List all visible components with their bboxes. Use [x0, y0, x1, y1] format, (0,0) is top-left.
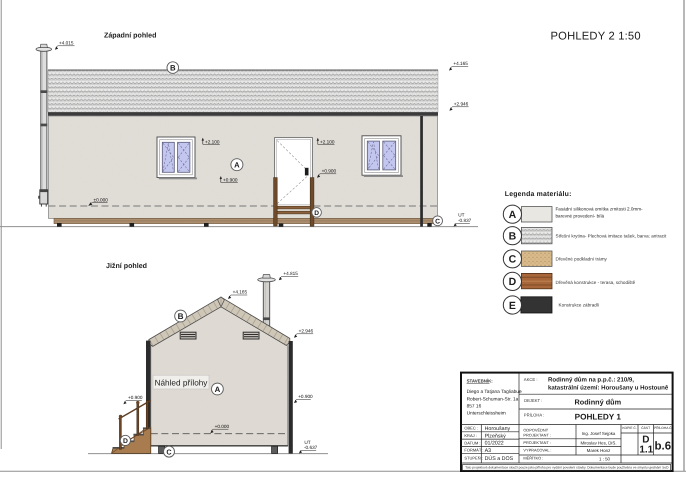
svg-text:D: D: [509, 276, 517, 288]
svg-text:Unterschleissheim: Unterschleissheim: [467, 410, 506, 416]
svg-text:UT: UT: [458, 213, 464, 218]
svg-text:Západní pohled: Západní pohled: [104, 32, 156, 40]
svg-text:Miroslav Hes, DiS.: Miroslav Hes, DiS.: [580, 440, 616, 445]
svg-text:-0.637: -0.637: [304, 445, 318, 450]
svg-text:+4.815: +4.815: [283, 271, 298, 276]
svg-text:+2.100: +2.100: [205, 139, 220, 144]
svg-text:DÚS a DOS: DÚS a DOS: [485, 455, 514, 462]
svg-text:PROJEKTANT :: PROJEKTANT :: [523, 433, 551, 438]
svg-text:+4.165: +4.165: [453, 61, 468, 66]
svg-text:+0.000: +0.000: [215, 424, 230, 429]
svg-text:Plzeňský: Plzeňský: [485, 433, 507, 439]
svg-text:1 : 50: 1 : 50: [599, 456, 611, 461]
svg-text:±0.000: ±0.000: [94, 197, 109, 202]
svg-text:+2.946: +2.946: [454, 101, 469, 106]
svg-text:katastrální území: Horoušany u: katastrální území: Horoušany u Hostouně: [548, 384, 669, 391]
svg-text:A: A: [215, 385, 221, 394]
svg-text:Konstrukce zábradlí: Konstrukce zábradlí: [559, 303, 600, 308]
svg-text:Horoušany: Horoušany: [485, 426, 511, 432]
svg-text:Rodinný dům na p.p.č.: 210/9,: Rodinný dům na p.p.č.: 210/9,: [548, 377, 634, 384]
svg-text:+4.165: +4.165: [233, 290, 248, 295]
svg-text:+2.100: +2.100: [320, 140, 335, 145]
svg-text:POHLEDY 1: POHLEDY 1: [575, 413, 622, 422]
svg-text:Legenda materiálu:: Legenda materiálu:: [505, 190, 572, 198]
svg-text:D: D: [123, 438, 128, 445]
svg-text:Jižní pohled: Jižní pohled: [106, 262, 147, 270]
svg-text:MĚŘÍTKO :: MĚŘÍTKO :: [523, 456, 543, 461]
svg-text:POHLEDY 2 1:50: POHLEDY 2 1:50: [551, 30, 641, 42]
svg-text:C: C: [435, 218, 440, 225]
svg-text:+0.900: +0.900: [322, 168, 337, 173]
svg-text:B: B: [509, 231, 517, 243]
svg-text:A: A: [509, 209, 517, 221]
svg-text:Rodinný dům: Rodinný dům: [574, 398, 621, 407]
svg-text:Marek Honz: Marek Honz: [587, 448, 611, 453]
svg-text:VYPRACOVAL :: VYPRACOVAL :: [523, 448, 551, 453]
svg-text:Fasádní silikonová omítka zrni: Fasádní silikonová omítka zrnitosti 2.0m…: [556, 207, 644, 212]
svg-text:-0.837: -0.837: [458, 218, 472, 223]
svg-text:AKCE :: AKCE :: [524, 377, 538, 382]
svg-text:A3: A3: [485, 448, 492, 454]
svg-text:STUPEŇ :: STUPEŇ :: [464, 456, 482, 461]
svg-text:C: C: [166, 447, 171, 456]
svg-text:FORMÁT :: FORMÁT :: [464, 448, 483, 453]
svg-text:PROJEKTANT :: PROJEKTANT :: [523, 440, 551, 445]
svg-text:Ing. Josef Sejpka: Ing. Josef Sejpka: [582, 431, 616, 436]
svg-text:E: E: [509, 300, 516, 312]
svg-text:1.1: 1.1: [639, 445, 653, 456]
svg-text:b.6: b.6: [654, 441, 671, 453]
svg-text:+4.015: +4.015: [59, 41, 74, 46]
svg-text:B: B: [170, 64, 176, 73]
svg-text:+0.900: +0.900: [128, 395, 143, 400]
svg-text:PŘÍLOHA :: PŘÍLOHA :: [524, 412, 544, 417]
svg-text:Robert-Schuman-Str. 1a: Robert-Schuman-Str. 1a: [467, 396, 519, 402]
svg-text:+0.900: +0.900: [223, 177, 238, 182]
svg-text:Náhled přílohy: Náhled přílohy: [155, 378, 209, 387]
svg-text:01/2022: 01/2022: [485, 441, 504, 447]
svg-text:Střešní krytina- Plechová imit: Střešní krytina- Plechová imitace tašek,…: [556, 234, 668, 239]
svg-text:KRAJ :: KRAJ :: [464, 433, 476, 438]
svg-text:B: B: [178, 312, 184, 321]
svg-text:+2.946: +2.946: [299, 328, 314, 333]
svg-text:C: C: [509, 254, 517, 266]
svg-text:PŘÍLOHA Č.: PŘÍLOHA Č.: [654, 426, 673, 430]
svg-text:Dřevěná konstrukce - terasa, s: Dřevěná konstrukce - terasa, schodiště: [556, 280, 636, 285]
svg-text:barevné provedení- bílá: barevné provedení- bílá: [556, 213, 605, 218]
svg-text:ČÁST: ČÁST: [641, 426, 650, 430]
svg-text:OBJEKT :: OBJEKT :: [524, 398, 543, 403]
svg-text:Tato projektová dokumentace sl: Tato projektová dokumentace slouží pouze…: [465, 466, 669, 470]
svg-text:Dřevěné podkladní trámy: Dřevěné podkladní trámy: [556, 257, 608, 262]
svg-text:Diego a Tatjana Tagliabue: Diego a Tatjana Tagliabue: [467, 389, 522, 395]
svg-text:+0.900: +0.900: [298, 394, 313, 399]
svg-text:OBEC :: OBEC :: [464, 426, 478, 431]
svg-text:D: D: [314, 210, 319, 217]
svg-text:DATUM :: DATUM :: [464, 440, 480, 445]
svg-text:KOPIE Č.: KOPIE Č.: [622, 426, 636, 430]
svg-text:STAVEBNÍK:: STAVEBNÍK:: [467, 378, 494, 383]
svg-text:857 16: 857 16: [467, 403, 482, 409]
svg-text:A: A: [234, 161, 240, 170]
